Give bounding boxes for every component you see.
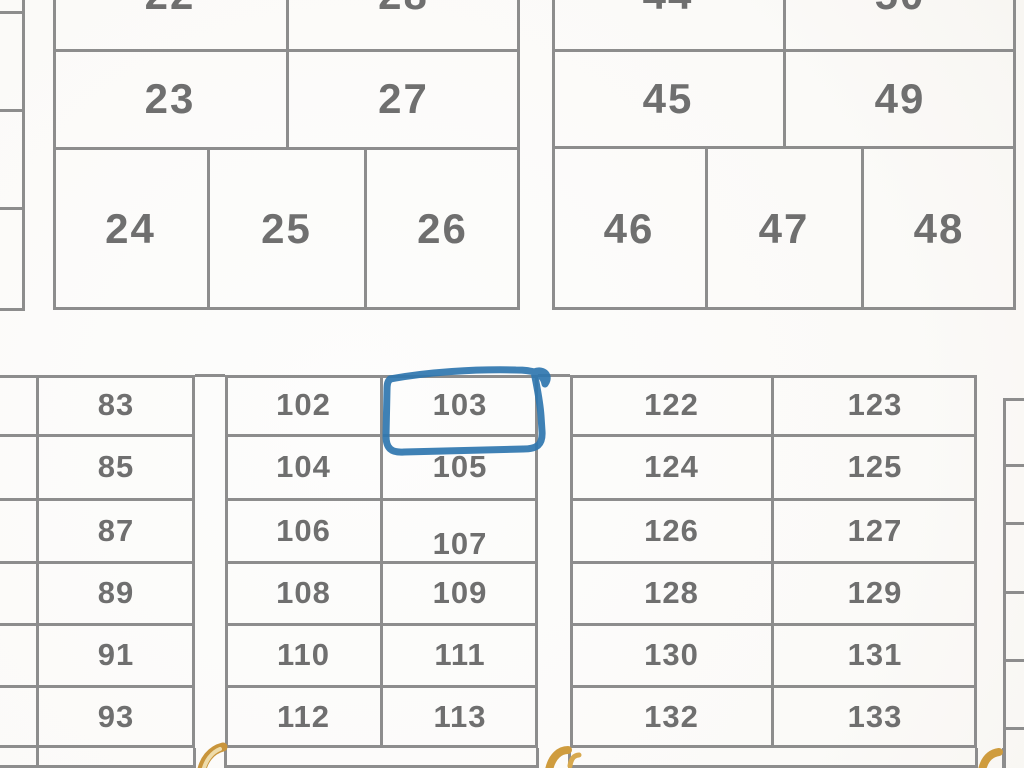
plot-48[interactable]: 48 (862, 147, 1016, 310)
plot-112[interactable]: 112 (225, 686, 382, 748)
plot-109[interactable]: 109 (382, 562, 538, 624)
plot-45[interactable]: 45 (552, 50, 784, 147)
grid-line (224, 748, 227, 768)
plot-44[interactable]: 44 (552, 0, 784, 50)
plot-106[interactable]: 106 (225, 499, 382, 562)
plot-83[interactable]: 83 (37, 375, 195, 435)
grid-line (0, 207, 25, 210)
plot-87[interactable]: 87 (37, 499, 195, 562)
grid-line (1003, 464, 1024, 467)
plot-128[interactable]: 128 (570, 562, 773, 624)
plot-28[interactable]: 28 (287, 0, 520, 50)
partial-block-top-left (0, 0, 25, 311)
plot-27[interactable]: 27 (287, 50, 520, 148)
plot-25[interactable]: 25 (208, 148, 365, 310)
partial-block-right (1003, 398, 1024, 768)
grid-line (195, 374, 225, 377)
plot-133[interactable]: 133 (773, 686, 977, 748)
plot-103[interactable]: 103 (382, 375, 538, 435)
plot-49[interactable]: 49 (784, 50, 1016, 147)
plot-132[interactable]: 132 (570, 686, 773, 748)
grid-line (568, 748, 571, 768)
plot-125[interactable]: 125 (773, 435, 977, 499)
plot-91[interactable]: 91 (37, 624, 195, 686)
plot-24[interactable]: 24 (53, 148, 208, 310)
plot-127[interactable]: 127 (773, 499, 977, 562)
plot-26[interactable]: 26 (365, 148, 520, 310)
grid-line (0, 11, 25, 14)
grid-line (1002, 748, 1005, 768)
plot-89[interactable]: 89 (37, 562, 195, 624)
plot-102[interactable]: 102 (225, 375, 382, 435)
plot-50[interactable]: 50 (784, 0, 1016, 50)
grid-line (1003, 522, 1024, 525)
grid-line (1003, 727, 1024, 730)
grid-line (536, 748, 539, 768)
plot-123[interactable]: 123 (773, 375, 977, 435)
grid-line (538, 374, 570, 377)
plot-46[interactable]: 46 (552, 147, 706, 310)
plot-22[interactable]: 22 (53, 0, 287, 50)
grid-line (1003, 591, 1024, 594)
plot-126[interactable]: 126 (570, 499, 773, 562)
plot-129[interactable]: 129 (773, 562, 977, 624)
plot-113[interactable]: 113 (382, 686, 538, 748)
plot-108[interactable]: 108 (225, 562, 382, 624)
grid-line (193, 748, 196, 768)
grid-line (975, 748, 978, 768)
plot-47[interactable]: 47 (706, 147, 862, 310)
grid-line (1003, 659, 1024, 662)
plot-130[interactable]: 130 (570, 624, 773, 686)
plot-111[interactable]: 111 (382, 624, 538, 686)
plot-131[interactable]: 131 (773, 624, 977, 686)
plot-104[interactable]: 104 (225, 435, 382, 499)
plot-105[interactable]: 105 (382, 435, 538, 499)
plot-85[interactable]: 85 (37, 435, 195, 499)
plot-93[interactable]: 93 (37, 686, 195, 748)
plot-124[interactable]: 124 (570, 435, 773, 499)
plot-122[interactable]: 122 (570, 375, 773, 435)
plot-23[interactable]: 23 (53, 50, 287, 148)
plot-map: 22 28 23 27 24 25 26 44 50 45 49 46 47 4… (0, 0, 1024, 768)
grid-line (0, 109, 25, 112)
plot-107[interactable]: 107 (382, 499, 538, 562)
plot-110[interactable]: 110 (225, 624, 382, 686)
grid-line (36, 748, 39, 768)
